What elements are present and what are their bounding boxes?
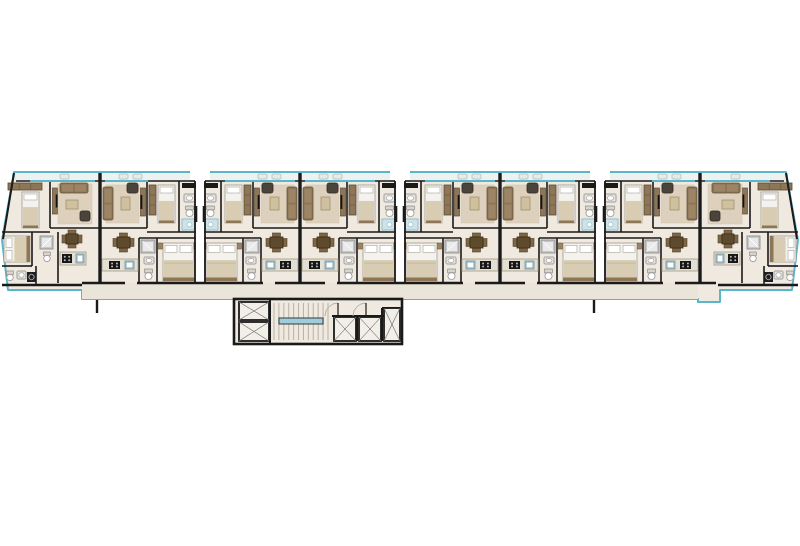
balcony-chair-icon (458, 174, 467, 179)
sofa-icon (305, 189, 312, 203)
double-bed-icon (208, 246, 220, 253)
double-bed-icon (380, 246, 392, 253)
shower-icon (408, 222, 413, 227)
tv-cabinet-icon (141, 195, 143, 209)
shaft-icon (239, 322, 269, 341)
toilet-icon (207, 210, 214, 217)
kitchen-sink-icon (527, 263, 532, 267)
dining-table-icon (66, 234, 78, 244)
dining-table-icon (666, 239, 670, 247)
single-bed-icon (762, 226, 777, 229)
stove-icon (482, 266, 484, 268)
double-bed-icon (608, 246, 620, 253)
vent-duct-icon (404, 183, 418, 188)
stove-icon (509, 261, 520, 269)
dining-table-icon (117, 237, 130, 248)
dining-table-icon (330, 239, 334, 247)
dining-table-icon (320, 248, 328, 252)
stove-icon (280, 261, 291, 269)
dining-table-icon (520, 233, 528, 237)
wardrobe-icon (349, 185, 356, 215)
armchair-icon (527, 183, 538, 193)
tv-cabinet-icon (341, 195, 343, 209)
dining-table-icon (530, 239, 534, 247)
double-bed-icon (408, 246, 420, 253)
double-bed-icon (770, 236, 774, 262)
facade-notch (390, 168, 410, 181)
balcony-chair-icon (533, 174, 542, 179)
coffee-table-icon (521, 197, 530, 210)
nightstand-icon (359, 243, 363, 249)
double-bed-icon (223, 246, 235, 253)
single-bed-icon (359, 221, 374, 224)
dining-table-icon (734, 235, 738, 243)
wardrobe-icon (244, 185, 251, 215)
balcony-chair-icon (60, 174, 69, 179)
kitchen-sink-icon (268, 263, 273, 267)
tv-cabinet-icon (743, 195, 745, 208)
dining-table-icon (270, 237, 283, 248)
light-well (596, 170, 604, 283)
corridor (82, 283, 698, 299)
stove-icon (311, 262, 313, 264)
shower-icon (587, 222, 592, 227)
dining-table-icon (320, 233, 328, 237)
stove-icon (116, 262, 118, 264)
sofa-icon (105, 205, 112, 219)
stove-icon (282, 266, 284, 268)
stove-icon (734, 259, 736, 261)
stove-icon (68, 259, 70, 261)
nightstand-icon (159, 243, 163, 249)
stove-icon (68, 256, 70, 258)
single-bed-icon (426, 201, 441, 222)
double-bed-icon (163, 278, 194, 282)
armchair-icon (710, 211, 720, 221)
kitchen-sink-icon (718, 256, 722, 261)
stove-icon (682, 262, 684, 264)
sofa-icon (489, 205, 496, 219)
sink-icon (146, 258, 152, 262)
toilet-icon (145, 273, 152, 280)
toilet-icon (750, 255, 757, 261)
stove-icon (487, 266, 489, 268)
double-bed-icon (580, 246, 592, 253)
shaft-icon (384, 308, 400, 341)
armchair-icon (262, 183, 273, 193)
stove-icon (511, 266, 513, 268)
sink-icon (207, 196, 214, 201)
sofa-icon (75, 185, 86, 192)
stove-icon (682, 266, 684, 268)
dining-table-icon (266, 239, 270, 247)
kitchen-sink-icon (78, 256, 82, 261)
light-well (396, 170, 404, 283)
stove-icon (680, 261, 691, 269)
sink-icon (248, 258, 254, 262)
double-bed-icon (365, 246, 377, 253)
single-bed-icon (559, 221, 574, 224)
dining-table-icon (520, 248, 528, 252)
coffee-table-icon (66, 200, 78, 209)
balcony-chair-icon (133, 174, 142, 179)
stove-icon (734, 256, 736, 258)
wardrobe-icon (444, 185, 451, 215)
dining-table-icon (517, 237, 530, 248)
washer-icon (764, 272, 773, 282)
washer-icon (27, 272, 36, 282)
balcony-chair-icon (258, 174, 267, 179)
wardrobe-icon (149, 185, 156, 215)
single-bed-icon (23, 226, 38, 229)
toilet-icon (345, 273, 352, 280)
double-bed-icon (406, 278, 437, 282)
dining-table-icon (78, 235, 82, 243)
elevator-icon (334, 317, 356, 341)
sofa-icon (489, 189, 496, 203)
double-bed-icon (788, 238, 794, 248)
stove-icon (516, 262, 518, 264)
stove-icon (316, 266, 318, 268)
armchair-icon (462, 183, 473, 193)
stove-icon (282, 262, 284, 264)
balcony-chair-icon (731, 174, 740, 179)
elevator-icon (359, 317, 381, 341)
vent-duct-icon (604, 183, 618, 188)
stove-icon (730, 256, 732, 258)
stove-icon (311, 266, 313, 268)
dining-table-icon (473, 248, 481, 252)
dining-table-icon (483, 239, 487, 247)
single-bed-icon (159, 221, 174, 224)
sink-icon (186, 196, 193, 201)
dining-table-icon (273, 233, 281, 237)
dining-table-icon (466, 239, 470, 247)
shower-icon (208, 222, 213, 227)
coffee-table-icon (722, 200, 734, 209)
double-bed-icon (27, 236, 31, 262)
stove-icon (728, 254, 738, 263)
facade-notch (190, 168, 210, 181)
stove-icon (730, 259, 732, 261)
balcony-chair-icon (333, 174, 342, 179)
double-bed-icon (165, 246, 177, 253)
vent-duct-icon (582, 183, 596, 188)
stove-icon (287, 266, 289, 268)
dining-table-icon (317, 237, 330, 248)
light-well (196, 170, 204, 283)
dining-table-icon (513, 239, 517, 247)
single-bed-icon (627, 187, 640, 193)
balcony-chair-icon (672, 174, 681, 179)
tv-cabinet-icon (658, 195, 660, 209)
dining-table-icon (120, 233, 128, 237)
balcony-chair-icon (519, 174, 528, 179)
toilet-icon (7, 274, 14, 280)
balcony-chair-icon (272, 174, 281, 179)
single-bed-icon (762, 207, 777, 227)
single-bed-icon (626, 201, 641, 222)
sink-icon (346, 258, 352, 262)
dining-table-icon (283, 239, 287, 247)
double-bed-icon (563, 278, 594, 282)
shower-icon (187, 222, 192, 227)
double-bed-icon (606, 278, 637, 282)
balcony-strip (610, 172, 784, 181)
sink-icon (407, 196, 414, 201)
sofa-icon (105, 189, 112, 203)
nightstand-icon (638, 243, 642, 249)
stove-icon (511, 262, 513, 264)
dining-table-icon (62, 235, 66, 243)
dining-table-icon (673, 233, 681, 237)
dining-table-icon (718, 235, 722, 243)
dining-table-icon (724, 244, 732, 248)
sofa-icon (505, 205, 512, 219)
tv-cabinet-icon (541, 195, 543, 209)
kitchen-sink-icon (327, 263, 332, 267)
toilet-icon (607, 210, 614, 217)
sink-icon (586, 196, 593, 201)
shaft-icon (239, 302, 269, 320)
single-bed-icon (24, 194, 37, 200)
single-bed-icon (559, 201, 574, 222)
balcony-chair-icon (319, 174, 328, 179)
sink-icon (648, 258, 654, 262)
double-bed-icon (6, 251, 12, 261)
balcony-chair-icon (119, 174, 128, 179)
vent-duct-icon (382, 183, 396, 188)
dining-table-icon (68, 244, 76, 248)
balcony-strip (16, 172, 190, 181)
toilet-icon (44, 255, 51, 261)
double-bed-icon (788, 251, 794, 261)
stove-icon (480, 261, 491, 269)
stove-icon (482, 262, 484, 264)
dining-table-icon (313, 239, 317, 247)
double-bed-icon (623, 246, 635, 253)
stove-icon (111, 262, 113, 264)
armchair-icon (127, 183, 138, 193)
dining-table-icon (130, 239, 134, 247)
dining-table-icon (470, 237, 483, 248)
stair-rail (279, 318, 323, 324)
kitchen-sink-icon (127, 263, 132, 267)
sofa-icon (305, 205, 312, 219)
stove-icon (109, 261, 120, 269)
tv-cabinet-icon (56, 195, 58, 208)
dining-table-icon (722, 234, 734, 244)
vent-duct-icon (204, 183, 218, 188)
nightstand-icon (438, 243, 442, 249)
stove-icon (64, 256, 66, 258)
floor-plan-svg (0, 0, 800, 546)
single-bed-icon (763, 194, 776, 200)
toilet-icon (545, 273, 552, 280)
dining-table-icon (673, 248, 681, 252)
sink-icon (448, 258, 454, 262)
toilet-icon (586, 210, 593, 217)
floor-plan-canvas (0, 0, 800, 546)
wardrobe-icon (644, 185, 651, 215)
coffee-table-icon (670, 197, 679, 210)
dining-table-icon (683, 239, 687, 247)
sofa-icon (727, 185, 738, 192)
dining-table-icon (473, 233, 481, 237)
vent-duct-icon (182, 183, 196, 188)
stove-icon (62, 254, 72, 263)
coffee-table-icon (470, 197, 479, 210)
tv-cabinet-icon (458, 195, 460, 209)
dining-table-icon (120, 248, 128, 252)
stove-icon (487, 262, 489, 264)
double-bed-icon (180, 246, 192, 253)
toilet-icon (248, 273, 255, 280)
toilet-icon (648, 273, 655, 280)
nightstand-icon (238, 243, 242, 249)
shower-icon (387, 222, 392, 227)
kitchen-sink-icon (468, 263, 473, 267)
stove-icon (687, 262, 689, 264)
stove-icon (111, 266, 113, 268)
coffee-table-icon (270, 197, 279, 210)
sink-icon (776, 273, 781, 278)
facade-notch (590, 168, 610, 181)
coffee-table-icon (321, 197, 330, 210)
sink-icon (607, 196, 614, 201)
stove-icon (516, 266, 518, 268)
stove-icon (309, 261, 320, 269)
single-bed-icon (359, 201, 374, 222)
stove-icon (687, 266, 689, 268)
double-bed-icon (363, 278, 394, 282)
toilet-icon (386, 210, 393, 217)
dining-table-icon (273, 248, 281, 252)
coffee-table-icon (121, 197, 130, 210)
armchair-icon (80, 211, 90, 221)
single-bed-icon (626, 221, 641, 224)
wardrobe-icon (549, 185, 556, 215)
balcony-chair-icon (472, 174, 481, 179)
tv-cabinet-icon (258, 195, 260, 209)
double-bed-icon (206, 278, 237, 282)
sink-icon (546, 258, 552, 262)
single-bed-icon (160, 187, 173, 193)
sofa-icon (689, 205, 696, 219)
sofa-icon (689, 189, 696, 203)
sofa-icon (62, 185, 73, 192)
sofa-icon (289, 189, 296, 203)
single-bed-icon (23, 207, 38, 227)
single-bed-icon (226, 221, 241, 224)
balcony-chair-icon (658, 174, 667, 179)
sink-icon (19, 273, 24, 278)
sofa-icon (505, 189, 512, 203)
dining-table-icon (670, 237, 683, 248)
stove-icon (287, 262, 289, 264)
toilet-icon (407, 210, 414, 217)
single-bed-icon (159, 201, 174, 222)
stove-icon (316, 262, 318, 264)
single-bed-icon (227, 187, 240, 193)
shower-icon (608, 222, 613, 227)
dining-table-icon (68, 230, 76, 234)
stove-icon (64, 259, 66, 261)
single-bed-icon (426, 221, 441, 224)
double-bed-icon (6, 238, 12, 248)
sofa-icon (289, 205, 296, 219)
toilet-icon (448, 273, 455, 280)
stove-icon (116, 266, 118, 268)
dining-table-icon (113, 239, 117, 247)
double-bed-icon (565, 246, 577, 253)
single-bed-icon (226, 201, 241, 222)
single-bed-icon (560, 187, 573, 193)
sofa-icon (714, 185, 725, 192)
single-bed-icon (360, 187, 373, 193)
toilet-icon (186, 210, 193, 217)
nightstand-icon (559, 243, 563, 249)
toilet-icon (787, 274, 794, 280)
sink-icon (386, 196, 393, 201)
double-bed-icon (423, 246, 435, 253)
kitchen-sink-icon (668, 263, 673, 267)
armchair-icon (327, 183, 338, 193)
armchair-icon (662, 183, 673, 193)
dining-table-icon (724, 230, 732, 234)
single-bed-icon (427, 187, 440, 193)
